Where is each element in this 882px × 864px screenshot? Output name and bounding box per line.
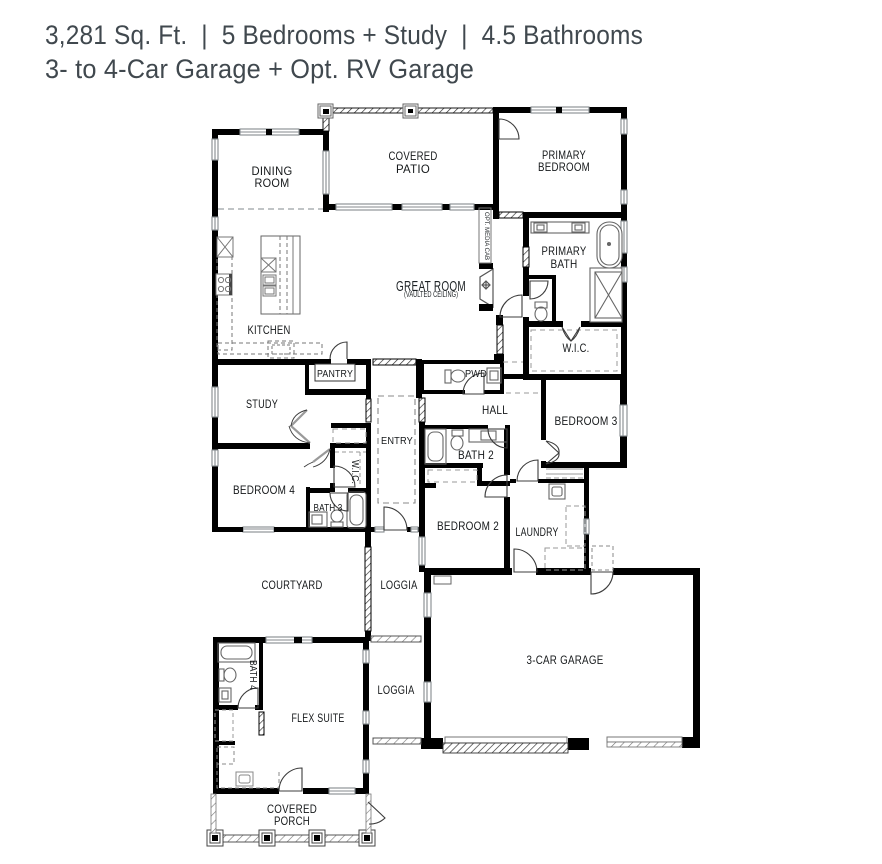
svg-text:(VAULTED CEILING): (VAULTED CEILING) [404,290,458,299]
svg-text:OPT. MEDIA CAB: OPT. MEDIA CAB [483,212,490,260]
svg-text:STUDY: STUDY [246,397,278,411]
svg-text:3,281 Sq. Ft. | 5 Bedrooms +: 3,281 Sq. Ft. | 5 Bedrooms + Study | 4.5… [45,20,643,50]
svg-text:W.I.C.: W.I.C. [563,341,590,355]
svg-text:BEDROOM: BEDROOM [538,160,590,174]
svg-text:LAUNDRY: LAUNDRY [516,525,559,539]
svg-text:COVERED: COVERED [389,149,438,163]
svg-text:BATH 2: BATH 2 [458,448,494,462]
svg-text:BEDROOM 2: BEDROOM 2 [437,519,499,533]
svg-text:BEDROOM 4: BEDROOM 4 [233,483,295,497]
svg-text:ROOM: ROOM [255,176,290,190]
svg-text:HALL: HALL [482,403,508,417]
svg-text:BATH 4: BATH 4 [247,660,259,690]
svg-text:COURTYARD: COURTYARD [262,578,323,592]
svg-text:ENTRY: ENTRY [381,435,413,447]
svg-text:PRIMARY: PRIMARY [542,244,587,258]
svg-text:BATH 3: BATH 3 [314,502,343,514]
svg-text:3- to 4-Car Garage + Opt. RV G: 3- to 4-Car Garage + Opt. RV Garage [45,54,474,84]
svg-text:LOGGIA: LOGGIA [378,683,415,697]
svg-text:FLEX SUITE: FLEX SUITE [292,711,345,725]
svg-text:KITCHEN: KITCHEN [248,323,291,337]
svg-text:BEDROOM 3: BEDROOM 3 [555,414,618,428]
svg-text:3-CAR GARAGE: 3-CAR GARAGE [527,653,604,667]
svg-text:BATH: BATH [551,257,578,271]
svg-text:PATIO: PATIO [396,162,430,176]
svg-text:LOGGIA: LOGGIA [381,578,418,592]
svg-text:W.I.C.: W.I.C. [349,460,361,484]
svg-text:PANTRY: PANTRY [317,368,353,380]
svg-text:PORCH: PORCH [274,814,310,828]
svg-text:PWD: PWD [465,368,487,380]
